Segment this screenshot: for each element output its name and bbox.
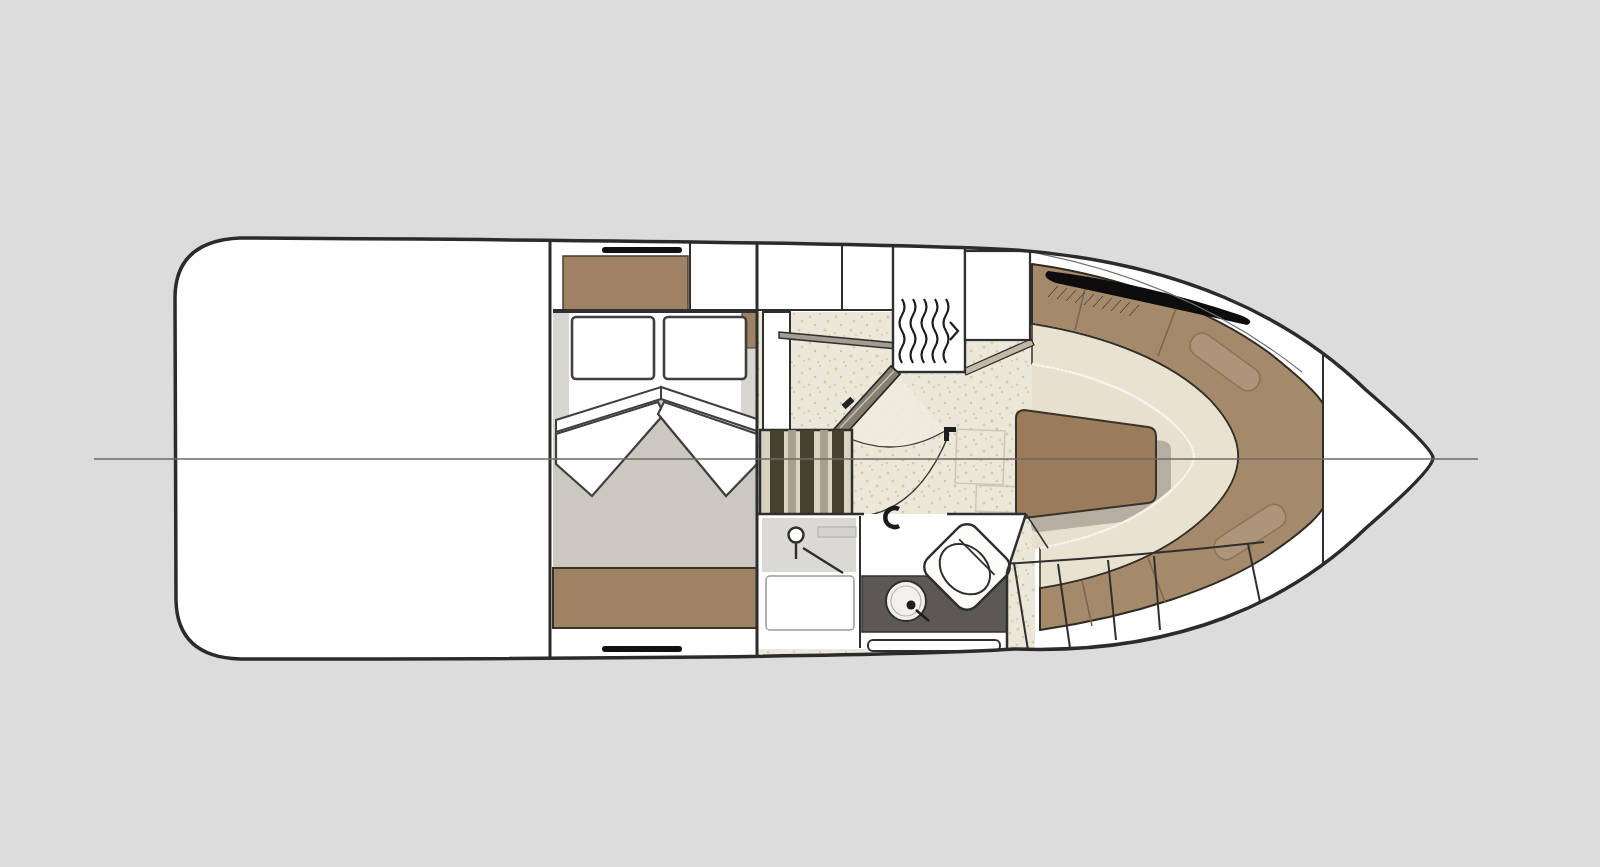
pillow-right <box>664 317 746 379</box>
accordion-door <box>893 246 965 372</box>
shower-wall-zone <box>762 518 856 572</box>
hatch-window-top <box>602 247 682 253</box>
shower-shelf <box>818 527 856 537</box>
wardrobe-cabinet <box>563 256 688 310</box>
berth-base-cushion <box>553 568 757 628</box>
galley-cabinet <box>965 251 1030 340</box>
salon-cabinet <box>763 312 790 444</box>
boat-floor-plan <box>0 0 1600 867</box>
shower-tray <box>766 576 854 630</box>
hatch-window-bottom <box>602 646 682 652</box>
companionway-stairs <box>760 430 852 518</box>
floor-plan-canvas <box>0 0 1600 867</box>
head-bathroom <box>758 508 1048 651</box>
dinette-table <box>1016 410 1156 518</box>
pillow-left <box>572 317 654 379</box>
